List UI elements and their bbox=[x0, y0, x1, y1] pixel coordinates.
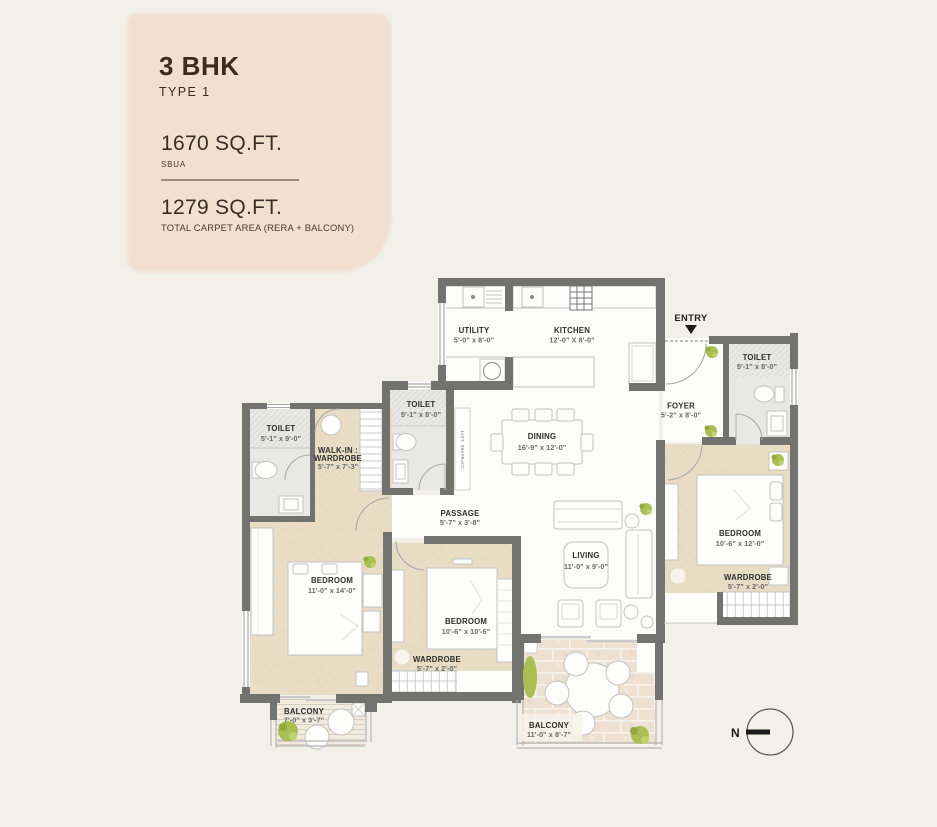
svg-text:5'-0" x 8'-0": 5'-0" x 8'-0" bbox=[454, 336, 494, 345]
svg-text:5'-7" x 7'-3": 5'-7" x 7'-3" bbox=[318, 462, 358, 471]
svg-text:5'-7" x 3'-8": 5'-7" x 3'-8" bbox=[440, 518, 480, 527]
svg-text:CUPBOARD LOFT: CUPBOARD LOFT bbox=[462, 429, 466, 468]
svg-text:SBUA: SBUA bbox=[161, 160, 186, 169]
svg-text:N: N bbox=[731, 726, 740, 740]
svg-text:LIVING: LIVING bbox=[572, 551, 599, 560]
svg-text:WARDROBE: WARDROBE bbox=[724, 573, 772, 582]
svg-text:FOYER: FOYER bbox=[667, 402, 695, 411]
svg-text:11'-0" x 8'-7": 11'-0" x 8'-7" bbox=[527, 730, 571, 739]
svg-text:5'-2" x 8'-0": 5'-2" x 8'-0" bbox=[661, 411, 701, 420]
svg-text:BEDROOM: BEDROOM bbox=[311, 576, 353, 585]
svg-text:UTILITY: UTILITY bbox=[459, 326, 490, 335]
svg-text:5'-7" x 2'-0": 5'-7" x 2'-0" bbox=[417, 664, 457, 673]
svg-text:TOILET: TOILET bbox=[743, 353, 772, 362]
svg-text:DINING: DINING bbox=[528, 432, 557, 441]
svg-text:TOILET: TOILET bbox=[407, 400, 436, 409]
svg-text:12'-0" X 8'-0": 12'-0" X 8'-0" bbox=[549, 336, 594, 345]
svg-text:7'-0" x 3'-7": 7'-0" x 3'-7" bbox=[284, 716, 324, 725]
svg-text:5'-7" x 2'-0": 5'-7" x 2'-0" bbox=[728, 582, 768, 591]
svg-text:BALCONY: BALCONY bbox=[529, 721, 570, 730]
svg-text:11'-0" x 9'-0": 11'-0" x 9'-0" bbox=[564, 562, 608, 571]
svg-text:16'-9" x 12'-0": 16'-9" x 12'-0" bbox=[518, 443, 567, 452]
svg-text:1279 SQ.FT.: 1279 SQ.FT. bbox=[161, 196, 282, 219]
svg-text:TOTAL CARPET AREA (RERA + BALC: TOTAL CARPET AREA (RERA + BALCONY) bbox=[161, 222, 354, 233]
svg-text:11'-0" x 14'-0": 11'-0" x 14'-0" bbox=[308, 586, 356, 595]
svg-text:TOILET: TOILET bbox=[267, 424, 296, 433]
svg-text:5'-1" x 9'-0": 5'-1" x 9'-0" bbox=[261, 434, 301, 443]
svg-text:BEDROOM: BEDROOM bbox=[719, 529, 761, 538]
svg-text:3 BHK: 3 BHK bbox=[159, 51, 240, 81]
svg-text:BEDROOM: BEDROOM bbox=[445, 617, 487, 626]
svg-text:10'-6" x 12'-0": 10'-6" x 12'-0" bbox=[716, 539, 765, 548]
svg-text:1670 SQ.FT.: 1670 SQ.FT. bbox=[161, 132, 282, 155]
svg-text:10'-6" x 10'-6": 10'-6" x 10'-6" bbox=[442, 627, 491, 636]
svg-text:TYPE 1: TYPE 1 bbox=[159, 85, 210, 99]
svg-text:KITCHEN: KITCHEN bbox=[554, 326, 590, 335]
svg-text:WARDROBE: WARDROBE bbox=[413, 655, 461, 664]
svg-text:5'-1" x 8'-0": 5'-1" x 8'-0" bbox=[737, 362, 777, 371]
svg-text:5'-1" x 8'-0": 5'-1" x 8'-0" bbox=[401, 410, 441, 419]
svg-text:ENTRY: ENTRY bbox=[674, 313, 708, 323]
svg-text:PASSAGE: PASSAGE bbox=[441, 509, 480, 518]
